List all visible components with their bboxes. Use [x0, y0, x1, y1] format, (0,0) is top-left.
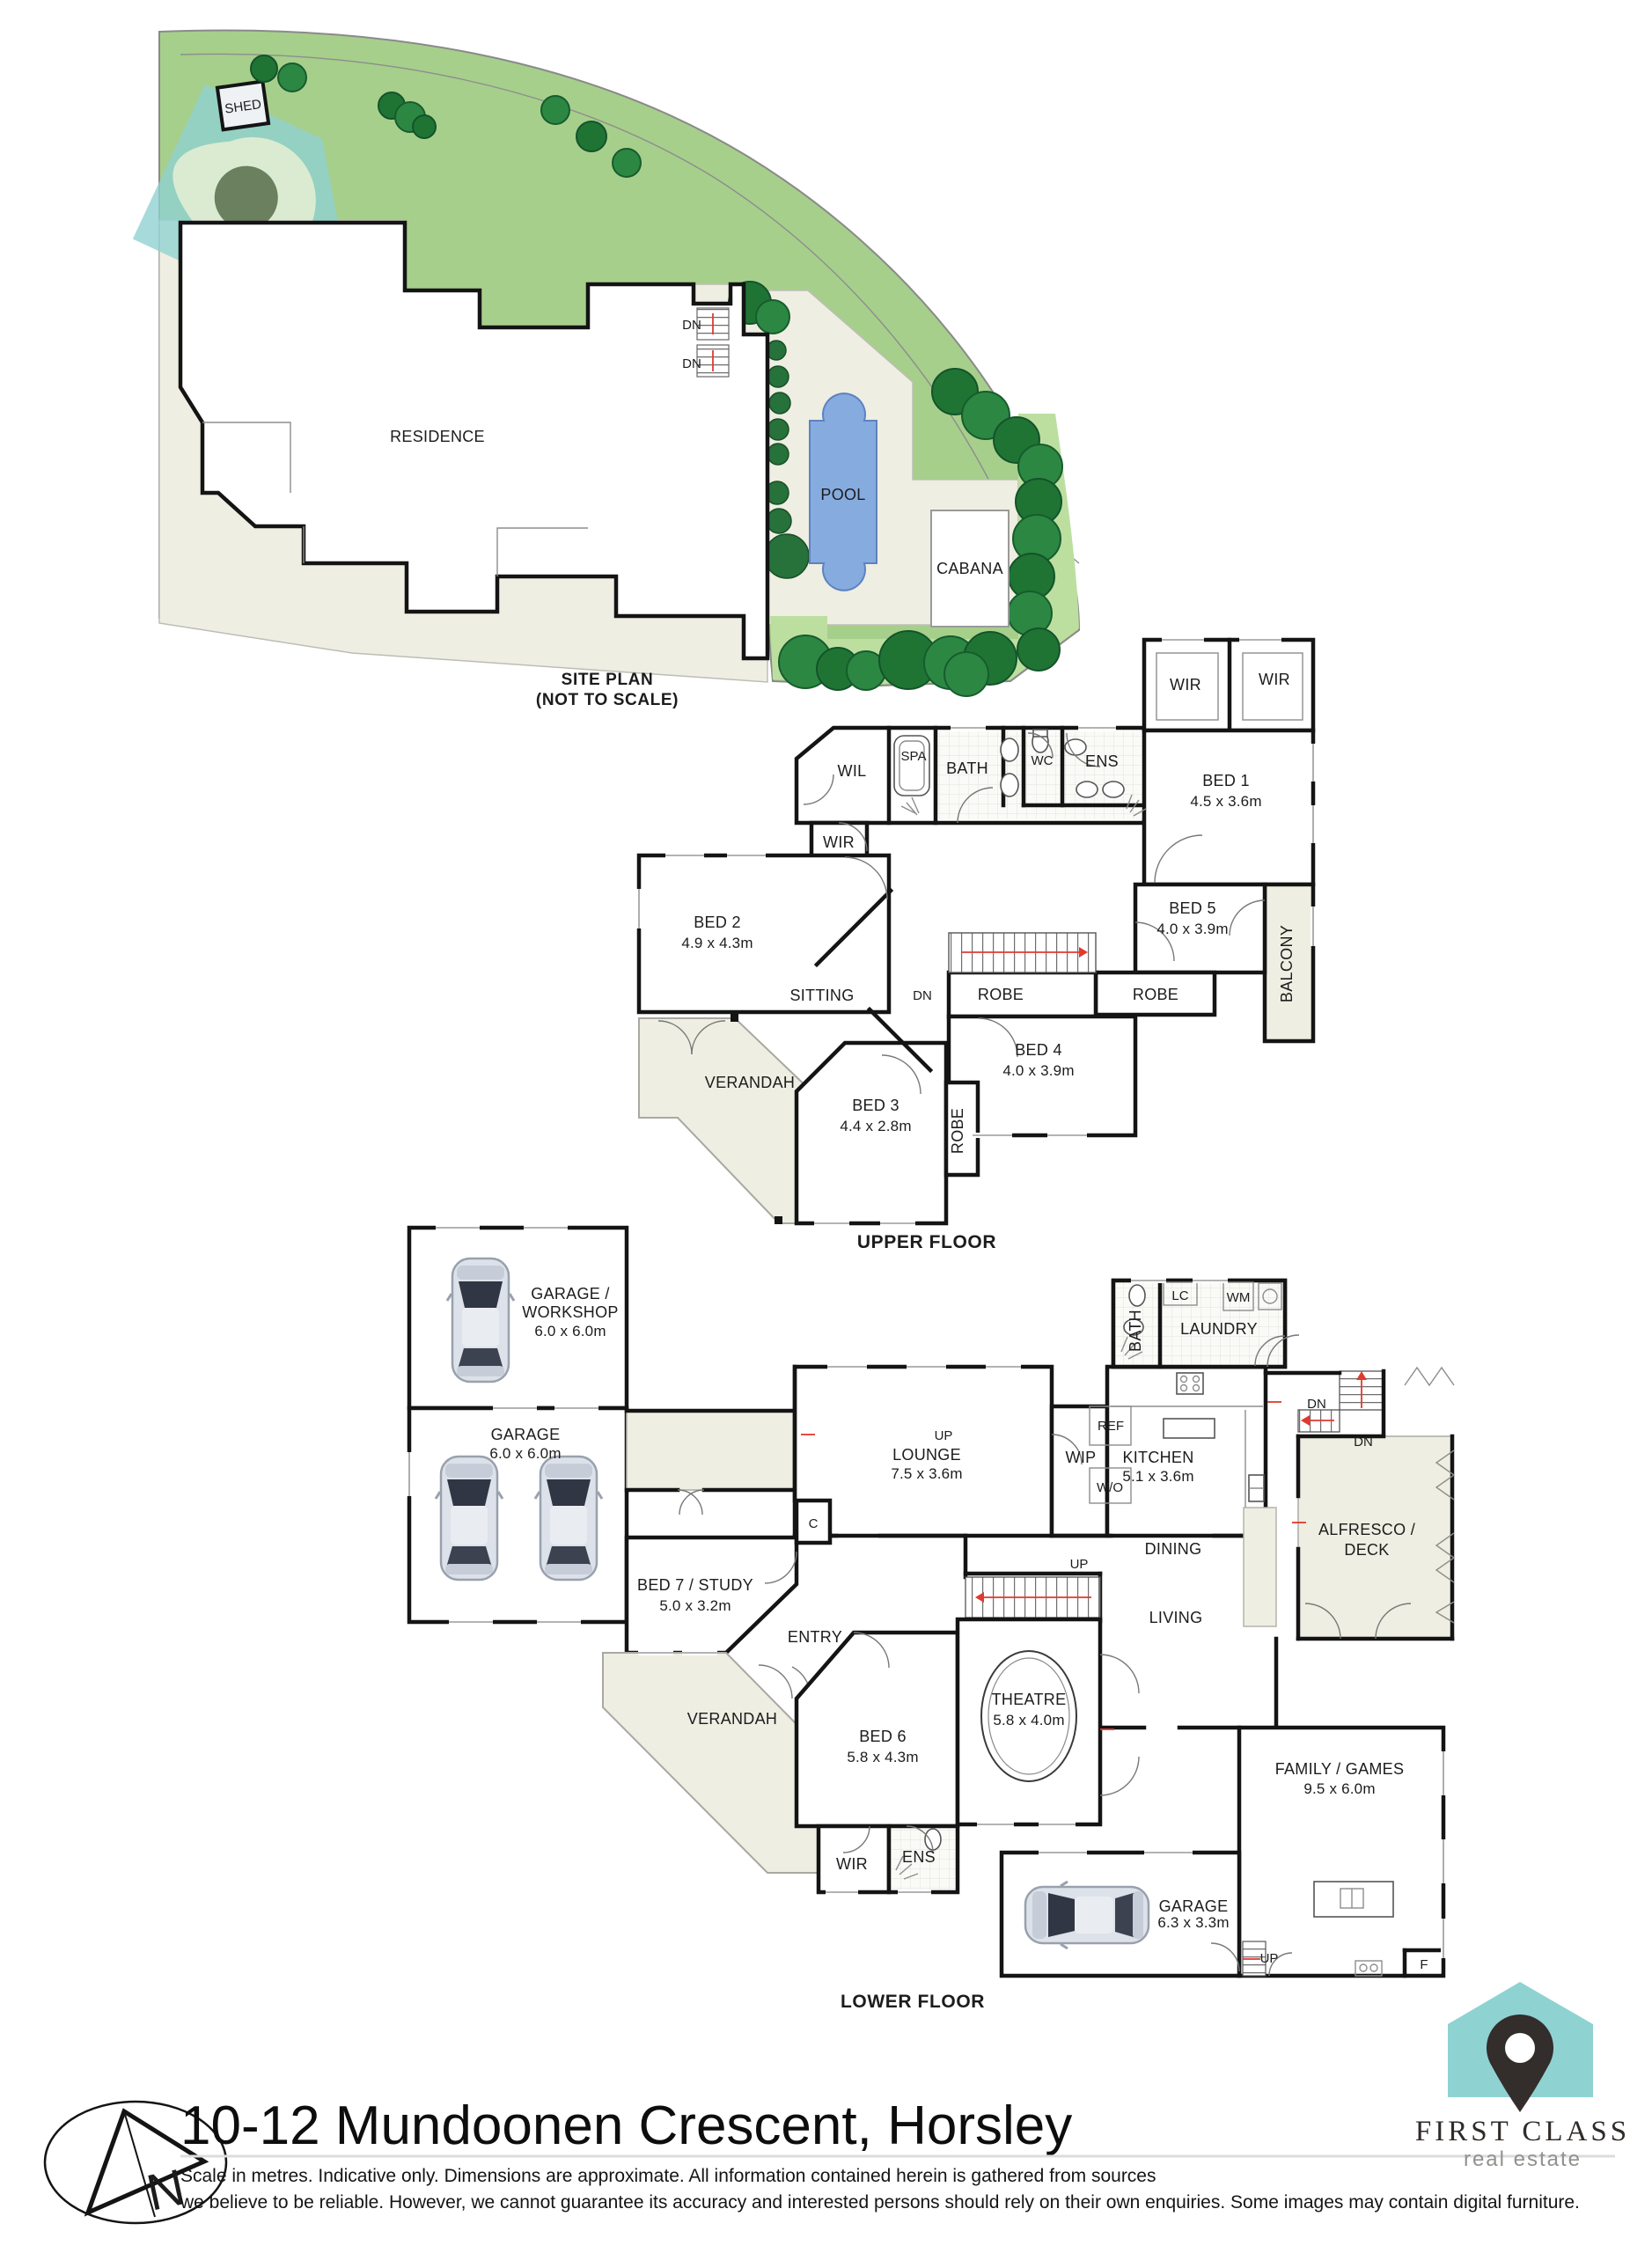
- lower-breezeway: [627, 1411, 795, 1490]
- theatre-dims: 5.8 x 4.0m: [993, 1712, 1064, 1728]
- upper-bed5-label: BED 5: [1169, 899, 1216, 917]
- bed7-label: BED 7 / STUDY: [637, 1576, 753, 1594]
- upper-bed3-label: BED 3: [852, 1097, 899, 1114]
- upper-balcony-label: BALCONY: [1278, 925, 1296, 1002]
- dn-a-label: DN: [1307, 1397, 1326, 1412]
- kitchen-dims: 5.1 x 3.6m: [1122, 1468, 1193, 1485]
- upper-bed4-dims: 4.0 x 3.9m: [1002, 1062, 1074, 1079]
- lower-floor-plan: GARAGE / WORKSHOP 6.0 x 6.0m GARAGE 6.0 …: [409, 1228, 1454, 2012]
- upper-sitting-label: SITTING: [789, 987, 854, 1004]
- lower-floor-caption: LOWER FLOOR: [841, 1992, 985, 2012]
- dn-b-label: DN: [1354, 1435, 1373, 1449]
- living-label: LIVING: [1149, 1609, 1203, 1626]
- site-caption-2: (NOT TO SCALE): [536, 691, 679, 709]
- upper-bath-label: BATH: [946, 760, 988, 777]
- residence-label: RESIDENCE: [390, 428, 485, 445]
- ref-label: REF: [1098, 1419, 1124, 1434]
- site-caption-1: SITE PLAN: [562, 671, 654, 689]
- upper-wil-label: WIL: [838, 762, 867, 780]
- family-label: FAMILY / GAMES: [1275, 1760, 1405, 1778]
- lounge-up-label: UP: [935, 1428, 953, 1443]
- workshop-dims: 6.0 x 6.0m: [534, 1323, 606, 1339]
- alfresco-label-2: DECK: [1344, 1541, 1389, 1559]
- upper-wc-label: WC: [1032, 753, 1054, 768]
- lower-wir-label: WIR: [836, 1855, 868, 1873]
- disclaimer-line-2: we believe to be reliable. However, we c…: [180, 2192, 1580, 2213]
- garage2-label: GARAGE: [1159, 1897, 1229, 1915]
- site-plan: SHED RESIDENCE DN: [133, 30, 1079, 709]
- brand-logo: FIRST CLASS real estate: [1415, 1982, 1630, 2171]
- lower-ens-label: ENS: [902, 1848, 936, 1866]
- dining-label: DINING: [1145, 1540, 1202, 1558]
- upper-bed1-dims: 4.5 x 3.6m: [1190, 793, 1261, 810]
- wm-label: WM: [1227, 1290, 1251, 1305]
- upper-dn-label: DN: [913, 988, 932, 1003]
- upper-bed2-dims: 4.9 x 4.3m: [681, 935, 753, 951]
- theatre-label: THEATRE: [992, 1691, 1067, 1708]
- brand-pin-icon: [1487, 2014, 1553, 2112]
- wip-label: WIP: [1066, 1449, 1097, 1466]
- up-stairs-label: UP: [1070, 1557, 1089, 1572]
- upper-floor-caption: UPPER FLOOR: [857, 1232, 996, 1252]
- bed7-dims: 5.0 x 3.2m: [659, 1597, 731, 1614]
- upper-wir-right-label: WIR: [1259, 671, 1290, 688]
- upper-bed1-label: BED 1: [1202, 772, 1250, 789]
- upper-bed4-label: BED 4: [1015, 1041, 1062, 1059]
- closet-c-label: C: [809, 1516, 819, 1531]
- entry-label: ENTRY: [788, 1628, 842, 1646]
- kitchen-label: KITCHEN: [1122, 1449, 1193, 1466]
- upper-wir-small-label: WIR: [823, 833, 855, 851]
- address-title: 10-12 Mundoonen Crescent, Horsley: [180, 2095, 1072, 2156]
- upper-robe-bed3-label: ROBE: [949, 1108, 966, 1154]
- floorplan-sheet: SHED RESIDENCE DN: [0, 0, 1652, 2253]
- lower-bath-label: BATH: [1127, 1310, 1144, 1352]
- lounge-dims: 7.5 x 3.6m: [891, 1465, 962, 1482]
- lower-bed7: [627, 1537, 797, 1653]
- upper-robe-bed4-label: ROBE: [978, 986, 1024, 1003]
- disclaimer-line-1: Scale in metres. Indicative only. Dimens…: [180, 2166, 1156, 2186]
- brand-tagline: real estate: [1464, 2147, 1582, 2171]
- lower-stairs-up: [966, 1574, 1100, 1621]
- upper-wir-left-label: WIR: [1170, 676, 1201, 694]
- up-garage-label: UP: [1260, 1951, 1279, 1966]
- laundry-label: LAUNDRY: [1180, 1320, 1258, 1338]
- garage2-dims: 6.3 x 3.3m: [1157, 1914, 1229, 1931]
- upper-bed2-label: BED 2: [694, 914, 741, 931]
- pool-label: POOL: [820, 486, 865, 503]
- garage-dims: 6.0 x 6.0m: [489, 1445, 561, 1462]
- upper-ens-label: ENS: [1085, 752, 1119, 770]
- bed6-label: BED 6: [859, 1728, 907, 1745]
- site-dn-top-label: DN: [682, 318, 701, 333]
- alfresco-label-1: ALFRESCO /: [1318, 1521, 1415, 1538]
- cabana-label: CABANA: [936, 560, 1003, 577]
- upper-verandah-label: VERANDAH: [705, 1074, 795, 1091]
- car-garage-right: [535, 1457, 602, 1580]
- wo-label: W/O: [1097, 1480, 1123, 1495]
- lounge-label: LOUNGE: [892, 1446, 961, 1464]
- garage-label: GARAGE: [491, 1426, 561, 1443]
- car-garage2: [1025, 1882, 1149, 1948]
- lc-label: LC: [1171, 1288, 1188, 1303]
- workshop-label-1: GARAGE /: [531, 1285, 609, 1303]
- upper-stairs-dn: [949, 933, 1096, 972]
- car-workshop: [447, 1259, 514, 1382]
- footer: N 10-12 Mundoonen Crescent, Horsley Scal…: [45, 1982, 1630, 2223]
- upper-floor-plan: WIR WIR BED 1 4.5 x 3.6m BED 5 4.0 x 3.9…: [639, 640, 1313, 1252]
- family-dims: 9.5 x 6.0m: [1303, 1780, 1375, 1797]
- car-garage-left: [436, 1457, 503, 1580]
- brand-name: FIRST CLASS: [1415, 2116, 1630, 2147]
- site-dn-bottom-label: DN: [682, 356, 701, 371]
- living-passage: [1244, 1508, 1276, 1626]
- upper-bed3-dims: 4.4 x 2.8m: [840, 1118, 911, 1134]
- lower-verandah-label: VERANDAH: [687, 1710, 777, 1728]
- fridge-label: F: [1420, 1957, 1428, 1972]
- workshop-label-2: WORKSHOP: [522, 1303, 618, 1321]
- shed: SHED: [217, 81, 268, 129]
- upper-spa-label: SPA: [901, 749, 927, 764]
- upper-robe-bed5-label: ROBE: [1133, 986, 1178, 1003]
- bed6-dims: 5.8 x 4.3m: [847, 1749, 918, 1765]
- upper-bed5-dims: 4.0 x 3.9m: [1156, 921, 1228, 937]
